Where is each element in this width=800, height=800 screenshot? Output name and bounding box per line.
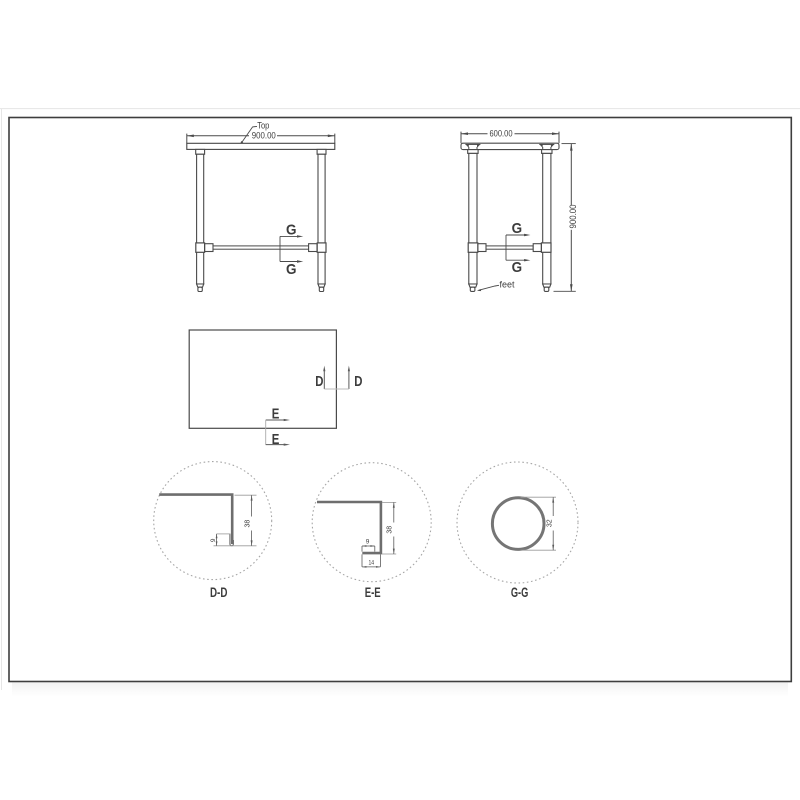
svg-text:38: 38 bbox=[387, 526, 394, 534]
svg-text:E: E bbox=[272, 431, 280, 448]
svg-text:900.00: 900.00 bbox=[252, 131, 276, 141]
svg-text:900.00: 900.00 bbox=[568, 205, 578, 229]
svg-text:E-E: E-E bbox=[365, 585, 381, 600]
svg-text:D-D: D-D bbox=[210, 585, 228, 600]
svg-text:9: 9 bbox=[366, 539, 370, 546]
svg-text:G: G bbox=[512, 220, 523, 237]
svg-text:feet: feet bbox=[500, 280, 515, 291]
svg-text:38: 38 bbox=[244, 520, 251, 528]
svg-text:G: G bbox=[286, 222, 297, 239]
svg-text:E: E bbox=[272, 405, 280, 422]
svg-text:D: D bbox=[354, 373, 362, 390]
svg-text:32: 32 bbox=[546, 519, 553, 527]
svg-text:G: G bbox=[512, 259, 523, 276]
svg-text:Top: Top bbox=[257, 120, 269, 130]
svg-text:600.00: 600.00 bbox=[490, 129, 513, 139]
svg-text:14: 14 bbox=[369, 559, 375, 566]
svg-text:D: D bbox=[315, 373, 323, 390]
svg-text:9: 9 bbox=[210, 538, 217, 542]
svg-text:G-G: G-G bbox=[511, 585, 529, 600]
svg-text:G: G bbox=[286, 261, 297, 278]
